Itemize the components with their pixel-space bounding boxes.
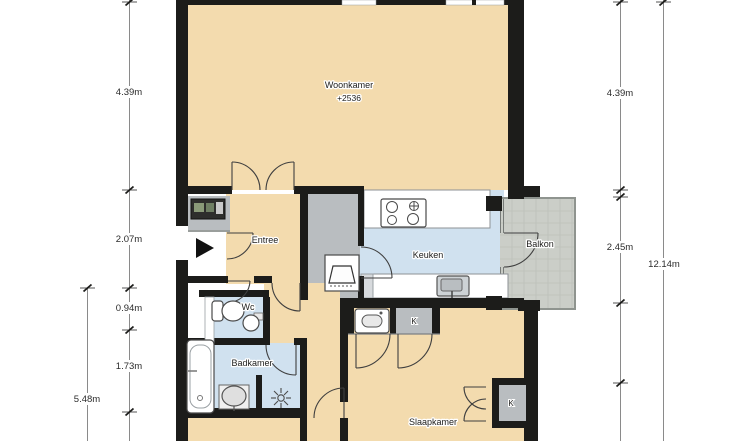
balkon-post-top-right <box>518 186 540 197</box>
wc-label: Wc <box>242 302 255 312</box>
slaapkamer-label: Slaapkamer <box>409 417 457 427</box>
wall-entree-bottom-a <box>188 276 228 283</box>
wall-right-upper <box>508 0 524 199</box>
wall-hall-slaapkamer-lower <box>340 418 348 441</box>
badkamer-label: Badkamer <box>231 358 272 368</box>
balkon-floor <box>500 199 576 309</box>
entree-label: Entree <box>252 235 279 245</box>
wall-entree-bottom-b <box>254 276 272 283</box>
wall-closet-left <box>300 194 308 300</box>
wall-woonkamer-bottom-mid <box>294 186 364 194</box>
wall-slaapkamer-right <box>524 304 538 441</box>
wall-badkamer-right <box>300 338 307 441</box>
woonkamer-label: Woonkamer <box>325 80 373 90</box>
bathroom-sink-icon <box>219 385 249 411</box>
dim-right-1: 4.39m <box>607 88 633 99</box>
wall-k2-left <box>492 378 499 428</box>
balkon-post-bottom-left <box>486 296 502 310</box>
wall-keuken-left-upper <box>358 194 364 246</box>
closet-fixture-icon <box>325 255 359 291</box>
kitchen-sink-icon <box>437 276 469 298</box>
wall-woonkamer-bottom-left <box>176 186 232 194</box>
balkon-post-bottom-right <box>518 300 540 311</box>
kitchen-closet-label: K <box>411 317 417 326</box>
wall-closet-sep-3 <box>432 308 440 334</box>
keuken-label: Keuken <box>413 250 444 260</box>
dim-left-3: 0.94m <box>116 303 142 314</box>
wall-k2-bottom <box>492 421 526 428</box>
washing-machine-icon <box>355 309 389 333</box>
bathtub-icon <box>187 340 214 413</box>
toilet-icon <box>212 301 244 321</box>
entrance-arrow-icon <box>196 238 214 258</box>
window-top-1 <box>342 0 376 5</box>
balkon-post-top-left <box>486 196 502 211</box>
dim-left-2: 2.07m <box>116 234 142 245</box>
window-divider <box>472 0 476 5</box>
stove-icon <box>381 199 426 227</box>
bedroom-closet-label: K <box>508 399 514 408</box>
woonkamer-level-label: +2536 <box>337 93 361 103</box>
wall-k2-top <box>492 378 526 385</box>
wall-closet-sep-1 <box>348 308 354 334</box>
wall-wc-right <box>263 297 270 345</box>
dim-right-2: 2.45m <box>607 242 633 253</box>
floor-plan-canvas: Woonkamer +2536 Entree Keuken Balkon Wc … <box>0 0 750 441</box>
dim-right-total: 12.14m <box>648 259 680 270</box>
wall-shower-stub <box>256 375 262 408</box>
dim-left-total: 5.48m <box>74 394 100 405</box>
wall-closet-sep-2 <box>390 308 396 334</box>
floor-plan-svg: Woonkamer +2536 Entree Keuken Balkon Wc … <box>0 0 750 441</box>
dim-left-1: 4.39m <box>116 87 142 98</box>
dim-left-4: 1.73m <box>116 361 142 372</box>
wall-wc-top <box>199 290 269 297</box>
room-below-floor <box>188 416 300 441</box>
balkon-label: Balkon <box>526 239 554 249</box>
